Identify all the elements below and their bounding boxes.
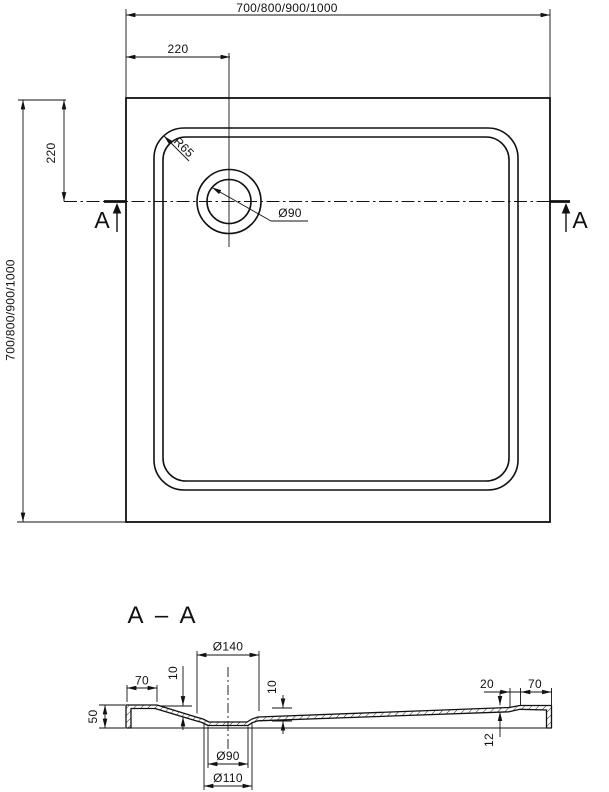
left-height-dim-label: 700/800/900/1000: [4, 259, 18, 361]
recess-depth-label: 10: [265, 680, 279, 694]
section-marker-right: [562, 203, 571, 232]
floor-thickness-label: 12: [482, 733, 496, 747]
top-view: [17, 9, 570, 522]
tray-outer-edge: [126, 98, 550, 522]
drawing-sheet: 700/800/900/1000 220 700/800/900/1000 22…: [0, 0, 609, 792]
section-title: A – A: [127, 602, 198, 629]
dim-top-width: [126, 9, 550, 98]
drain-hole-dia-label: Ø90: [216, 749, 240, 763]
drop-left-label: 10: [166, 666, 180, 680]
drain-offset-y-label: 220: [44, 143, 58, 164]
top-width-dim-label: 700/800/900/1000: [236, 1, 338, 15]
basin-rim-edge: [154, 128, 518, 490]
tray-shell-section: [126, 705, 552, 728]
basin-floor-edge: [163, 137, 509, 481]
section-marker-left: [113, 203, 122, 232]
total-height-label: 50: [86, 710, 100, 724]
rim-left-label: 70: [135, 674, 149, 688]
section-arrow-left-icon: [113, 203, 122, 214]
dim-total-height: [99, 705, 125, 728]
dim-left-height: [17, 100, 126, 522]
section-letter-left: A: [94, 207, 110, 233]
drain-diameter-label: Ø90: [278, 206, 302, 220]
corner-radius-label: R65: [171, 134, 197, 160]
dim-rim-left: [127, 685, 157, 702]
recess-top-dia-label: Ø140: [213, 640, 244, 654]
section-letter-right: A: [572, 207, 588, 233]
taper-label: 20: [480, 677, 494, 691]
shower-tray-technical-drawing: 700/800/900/1000 220 700/800/900/1000 22…: [0, 0, 609, 792]
drain-offset-x-label: 220: [168, 42, 189, 56]
recess-bottom-dia-label: Ø110: [213, 771, 243, 785]
rim-right-label: 70: [528, 677, 542, 691]
section-arrow-right-icon: [562, 203, 571, 214]
